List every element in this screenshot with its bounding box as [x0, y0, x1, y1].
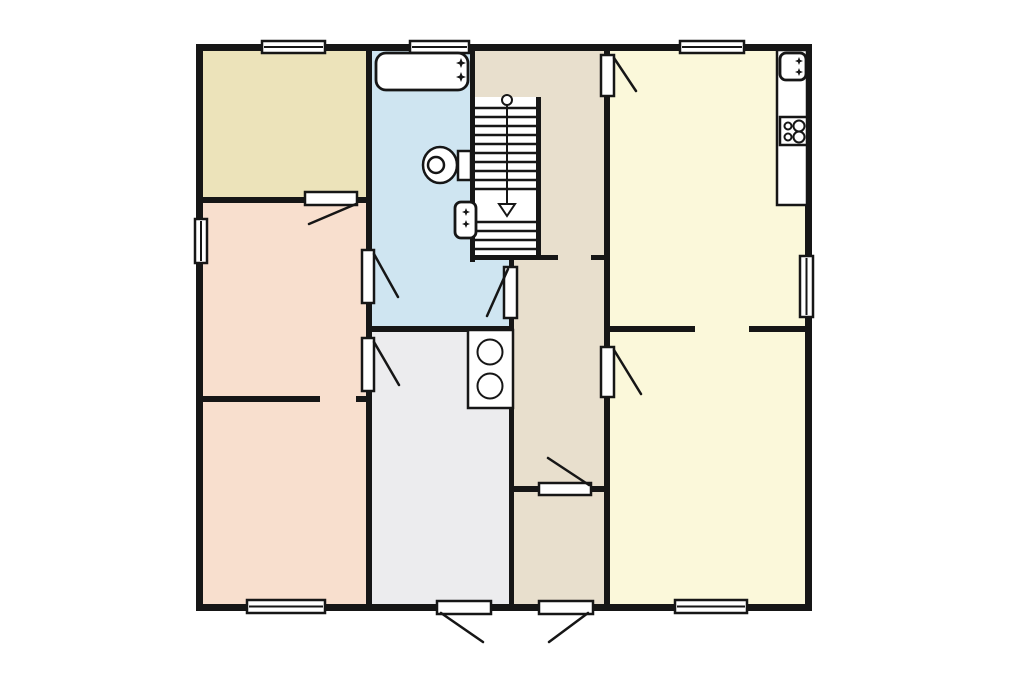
door-utility-west	[362, 338, 374, 391]
kitchen-sink	[780, 53, 806, 80]
room-bottom-right	[606, 328, 808, 607]
room-top-left	[199, 47, 369, 197]
door-kitchen	[601, 55, 614, 96]
door-utility-exterior-swing	[441, 613, 483, 642]
vestibule	[512, 489, 606, 607]
toilet-seat	[428, 157, 444, 173]
door-front-swing	[549, 613, 588, 642]
hallway	[512, 258, 606, 489]
hob-burners-icon	[794, 121, 805, 132]
door-bathroom-west	[362, 250, 374, 303]
bathtub	[376, 53, 468, 90]
floor-plan-svg	[0, 0, 1024, 680]
utility-appliance-drums-icon	[478, 340, 503, 365]
door-utility-exterior	[437, 601, 491, 614]
floor-plan-page	[0, 0, 1024, 680]
hob-burners-icon	[785, 123, 792, 130]
hob-burners-icon	[785, 134, 792, 141]
hall-beside-stairs	[539, 97, 606, 258]
wall-pink-divider	[201, 396, 320, 402]
stairwell	[473, 97, 538, 258]
door-bottom-right-room	[601, 347, 614, 397]
stair-start-circle	[502, 95, 512, 105]
wall-stairs-east	[536, 97, 541, 260]
door-top-left-room	[305, 192, 357, 205]
room-mid-left	[199, 197, 369, 400]
room-bottom-left	[199, 398, 369, 607]
wall-right-divider-west	[604, 326, 695, 332]
basin	[455, 202, 476, 238]
hob-burners-icon	[794, 132, 805, 143]
wall-right-divider-east	[749, 326, 807, 332]
utility-appliance-drums-icon	[478, 374, 503, 399]
wall-pink-divider-stub	[356, 396, 367, 402]
door-front	[539, 601, 593, 614]
wall-exterior-left	[196, 44, 203, 611]
landing-top	[473, 47, 606, 97]
door-vestibule	[539, 483, 591, 495]
toilet-cistern	[458, 151, 471, 180]
